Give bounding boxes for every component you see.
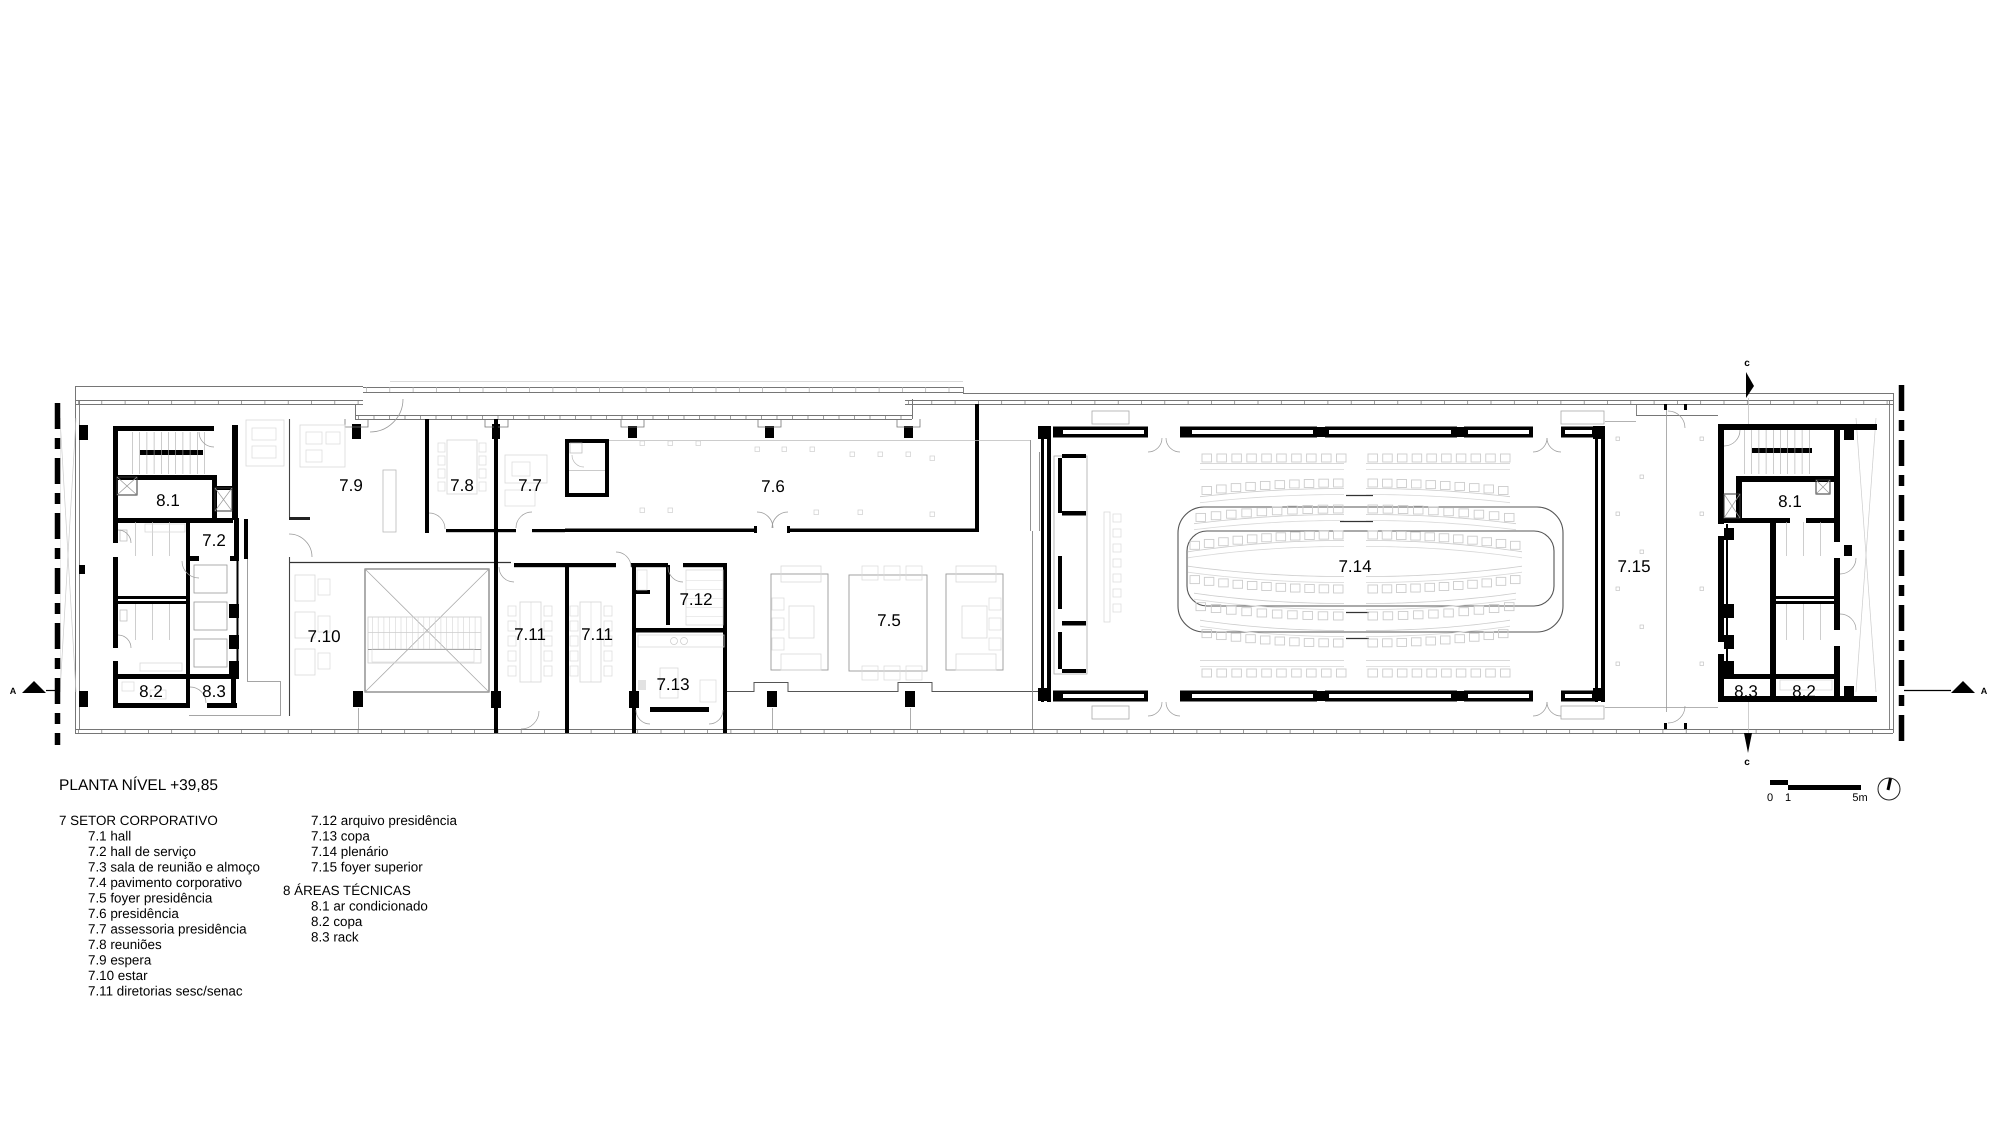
svg-text:7.7 assessoria presidência: 7.7 assessoria presidência: [88, 922, 247, 937]
svg-text:7.9: 7.9: [339, 476, 363, 495]
svg-text:7.15 foyer superior: 7.15 foyer superior: [311, 860, 423, 875]
svg-text:7.11: 7.11: [581, 625, 613, 644]
svg-text:7.5 foyer presidência: 7.5 foyer presidência: [88, 891, 213, 906]
svg-text:PLANTA NÍVEL +39,85: PLANTA NÍVEL +39,85: [59, 776, 218, 794]
svg-text:c: c: [1744, 358, 1750, 369]
svg-text:8.2: 8.2: [1792, 682, 1816, 701]
svg-text:7.12: 7.12: [679, 590, 712, 609]
svg-text:5m: 5m: [1852, 792, 1867, 804]
svg-text:7.13: 7.13: [656, 675, 689, 694]
svg-text:7 SETOR CORPORATIVO: 7 SETOR CORPORATIVO: [59, 813, 218, 828]
svg-text:7.6: 7.6: [761, 477, 785, 496]
svg-text:7.10 estar: 7.10 estar: [88, 968, 148, 983]
svg-text:7.2 hall de serviço: 7.2 hall de serviço: [88, 844, 196, 859]
svg-text:8 ÁREAS TÉCNICAS: 8 ÁREAS TÉCNICAS: [283, 883, 411, 898]
svg-text:7.13 copa: 7.13 copa: [311, 829, 370, 844]
svg-text:A: A: [10, 686, 17, 696]
svg-text:7.12 arquivo presidência: 7.12 arquivo presidência: [311, 813, 457, 828]
svg-text:8.3 rack: 8.3 rack: [311, 930, 359, 945]
svg-text:8.2 copa: 8.2 copa: [311, 914, 363, 929]
svg-text:7.14 plenário: 7.14 plenário: [311, 844, 388, 859]
svg-text:7.15: 7.15: [1617, 557, 1650, 576]
svg-text:7.10: 7.10: [307, 627, 340, 646]
svg-text:A: A: [1981, 686, 1988, 696]
svg-text:7.11 diretorias sesc/senac: 7.11 diretorias sesc/senac: [88, 984, 243, 999]
svg-text:7.14: 7.14: [1338, 557, 1371, 576]
svg-text:7.2: 7.2: [202, 531, 226, 550]
svg-text:7.1 hall: 7.1 hall: [88, 829, 131, 844]
svg-text:8.1 ar condicionado: 8.1 ar condicionado: [311, 899, 428, 914]
svg-text:7.11: 7.11: [514, 625, 546, 644]
svg-text:c: c: [1744, 757, 1750, 768]
svg-text:8.1: 8.1: [156, 491, 180, 510]
svg-text:7.3 sala de reunião e almoço: 7.3 sala de reunião e almoço: [88, 860, 260, 875]
svg-text:7.9 espera: 7.9 espera: [88, 953, 152, 968]
svg-text:8.1: 8.1: [1778, 492, 1802, 511]
svg-text:7.8: 7.8: [450, 476, 474, 495]
svg-text:7.4 pavimento corporativo: 7.4 pavimento corporativo: [88, 875, 242, 890]
svg-text:8.3: 8.3: [1734, 682, 1758, 701]
svg-text:7.8 reuniões: 7.8 reuniões: [88, 937, 162, 952]
svg-text:8.3: 8.3: [202, 682, 226, 701]
svg-text:7.6 presidência: 7.6 presidência: [88, 906, 179, 921]
svg-text:8.2: 8.2: [139, 682, 163, 701]
svg-text:1: 1: [1785, 792, 1791, 804]
svg-text:7.7: 7.7: [518, 476, 542, 495]
svg-text:7.5: 7.5: [877, 611, 901, 630]
svg-text:0: 0: [1767, 792, 1773, 804]
